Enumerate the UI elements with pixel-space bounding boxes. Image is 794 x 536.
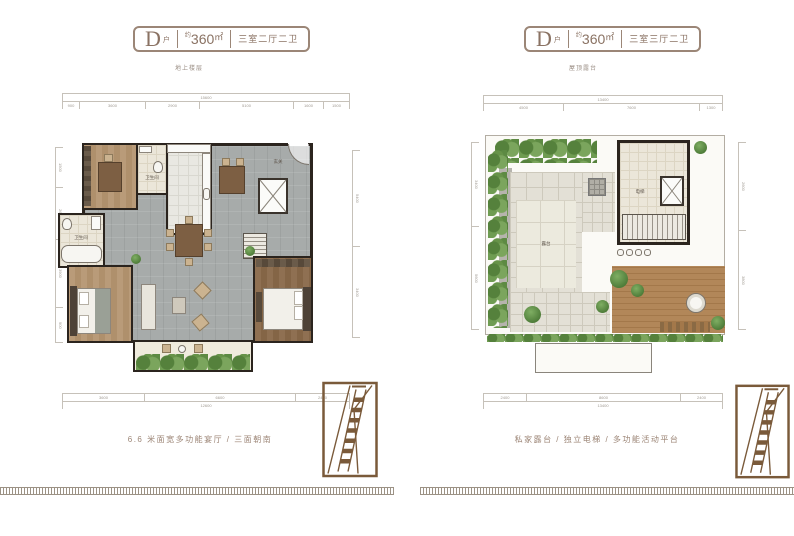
tv-bench bbox=[256, 292, 262, 322]
room-label: 电梯 bbox=[636, 189, 645, 195]
kitchen-counter bbox=[167, 144, 211, 153]
room-label: 露台 bbox=[542, 241, 551, 247]
title-divider bbox=[177, 30, 178, 48]
skylight-grate bbox=[588, 178, 606, 196]
dim-top-segments: 4500 7600 1300 bbox=[483, 103, 723, 111]
dim-right-segments: 5400 3400 bbox=[352, 150, 360, 338]
dining-chair bbox=[204, 243, 212, 251]
dim-value: 3400 bbox=[471, 142, 479, 226]
unit-suffix: 户 bbox=[163, 35, 170, 45]
area-group: 约 360 ㎡ bbox=[185, 32, 223, 46]
shrub bbox=[631, 284, 644, 297]
dim-value: 13400 bbox=[483, 401, 723, 409]
room-label: 玄关 bbox=[274, 159, 283, 165]
meander-border bbox=[0, 487, 394, 495]
dim-value: 5400 bbox=[352, 150, 360, 246]
dim-value: 3800 bbox=[738, 230, 746, 330]
dining-chair bbox=[166, 229, 174, 237]
hot-tub bbox=[686, 293, 706, 313]
hedge-row bbox=[487, 334, 723, 342]
area-unit: ㎡ bbox=[214, 33, 223, 42]
roof-garden-strip bbox=[495, 139, 597, 163]
title-divider bbox=[621, 30, 622, 48]
layout-label: 三室三厅二卫 bbox=[629, 32, 689, 45]
dim-top-total: 13400 bbox=[483, 95, 723, 103]
dim-bottom-segments: 3600 6600 2400 bbox=[62, 393, 350, 401]
planter-box bbox=[626, 249, 633, 256]
deck-steps bbox=[660, 322, 710, 332]
dim-right-segments: 2600 3800 bbox=[738, 142, 746, 330]
plant bbox=[131, 254, 141, 264]
shrub bbox=[711, 316, 725, 330]
sink bbox=[139, 146, 152, 153]
floorplan-sheet: D 户 约 360 ㎡ 三室二厅二卫 地上楼层 15600 900 3600 2… bbox=[0, 0, 794, 536]
left-plan-caption: 6.6 米面宽多功能宴厅 / 三面朝南 bbox=[128, 434, 273, 445]
bed-headboard bbox=[70, 286, 77, 336]
area-number: 360 bbox=[191, 32, 214, 46]
dim-left-segments: 3400 5600 bbox=[471, 142, 479, 330]
area-number: 360 bbox=[582, 32, 605, 46]
pillow bbox=[294, 306, 303, 320]
unit-letter: D bbox=[536, 28, 552, 50]
roof-garden-strip bbox=[488, 150, 508, 328]
right-plan-subtitle: 屋顶露台 bbox=[569, 63, 597, 72]
left-plan-title-badge: D 户 约 360 ㎡ 三室二厅二卫 bbox=[133, 26, 310, 52]
dim-value: 13400 bbox=[483, 95, 723, 103]
dim-value: 900 bbox=[62, 101, 79, 109]
dim-bottom-total: 12600 bbox=[62, 401, 350, 409]
balcony-table bbox=[178, 345, 186, 353]
coffee-table bbox=[172, 297, 186, 314]
dim-value: 4500 bbox=[483, 103, 563, 111]
right-plan-caption: 私家露台 / 独立电梯 / 多功能活动平台 bbox=[515, 434, 680, 445]
elevator-shaft bbox=[258, 178, 288, 214]
kitchen-sink bbox=[203, 188, 210, 200]
toilet bbox=[153, 161, 163, 173]
wardrobe bbox=[256, 259, 310, 267]
dim-value: 12600 bbox=[62, 401, 350, 409]
dining-table bbox=[175, 224, 203, 257]
area-unit: ㎡ bbox=[605, 33, 614, 42]
dim-value: 2600 bbox=[738, 142, 746, 230]
chair bbox=[236, 158, 244, 166]
chair bbox=[222, 158, 230, 166]
dim-top-segments: 900 3600 2900 5100 1600 1500 bbox=[62, 101, 350, 109]
bathtub bbox=[61, 245, 102, 263]
dim-value: 7600 bbox=[563, 103, 699, 111]
dining-chair bbox=[185, 258, 193, 266]
desk bbox=[98, 162, 122, 192]
pillow bbox=[79, 292, 89, 305]
dining-chair bbox=[166, 243, 174, 251]
dining-chair bbox=[185, 216, 193, 224]
chair bbox=[104, 154, 113, 162]
dim-value: 6600 bbox=[144, 393, 295, 401]
unit-letter: D bbox=[145, 28, 161, 50]
left-plan-subtitle: 地上楼层 bbox=[175, 63, 203, 72]
unit-suffix: 户 bbox=[554, 35, 561, 45]
staircase bbox=[622, 214, 686, 240]
dim-bottom-total: 13400 bbox=[483, 401, 723, 409]
pillow bbox=[79, 315, 89, 328]
dim-value: 5600 bbox=[471, 226, 479, 330]
dim-value: 8600 bbox=[526, 393, 680, 401]
pillow bbox=[294, 291, 303, 305]
dim-value: 1300 bbox=[699, 103, 723, 111]
title-divider bbox=[568, 30, 569, 48]
dim-value: 2400 bbox=[680, 393, 723, 401]
site-locator-stamp bbox=[735, 384, 790, 479]
plant bbox=[245, 246, 255, 256]
planter-box bbox=[635, 249, 642, 256]
sink bbox=[91, 216, 101, 230]
dim-top-total: 15600 bbox=[62, 93, 350, 101]
elevator-shaft bbox=[660, 176, 684, 206]
dim-value: 15600 bbox=[62, 93, 350, 101]
dining-chair bbox=[204, 229, 212, 237]
dim-value: 3400 bbox=[352, 246, 360, 338]
wardrobe bbox=[84, 146, 91, 206]
site-locator-stamp bbox=[322, 381, 378, 478]
balcony-chair bbox=[162, 344, 171, 353]
dim-value: 1600 bbox=[293, 101, 323, 109]
sofa bbox=[141, 284, 156, 330]
toilet bbox=[62, 218, 72, 230]
console-table bbox=[219, 166, 245, 194]
balcony-chair bbox=[194, 344, 203, 353]
planter-box bbox=[617, 249, 624, 256]
bed-headboard bbox=[303, 287, 311, 331]
right-plan-title-badge: D 户 约 360 ㎡ 三室三厅二卫 bbox=[524, 26, 701, 52]
dim-value: 1500 bbox=[323, 101, 350, 109]
meander-border bbox=[420, 487, 794, 495]
blanket bbox=[95, 289, 110, 333]
room-label: 卫生间 bbox=[145, 175, 159, 181]
dim-value: 3600 bbox=[79, 101, 145, 109]
dim-value: 5100 bbox=[199, 101, 293, 109]
shrub bbox=[694, 141, 707, 154]
area-group: 约 360 ㎡ bbox=[576, 32, 614, 46]
dim-value: 1500 bbox=[55, 147, 63, 187]
room-label: 卫生间 bbox=[74, 235, 88, 241]
planter-box bbox=[644, 249, 651, 256]
dim-value: 3600 bbox=[62, 393, 144, 401]
dim-value: 900 bbox=[55, 307, 63, 343]
shrub bbox=[596, 300, 609, 313]
dim-bottom-segments: 2400 8600 2400 bbox=[483, 393, 723, 401]
shrub bbox=[610, 270, 628, 288]
dim-value: 2400 bbox=[483, 393, 526, 401]
dim-value: 2900 bbox=[145, 101, 199, 109]
shrub bbox=[524, 306, 541, 323]
title-divider bbox=[230, 30, 231, 48]
balcony-plants bbox=[136, 354, 250, 370]
layout-label: 三室二厅二卫 bbox=[238, 32, 298, 45]
lower-level-outline bbox=[535, 343, 652, 373]
